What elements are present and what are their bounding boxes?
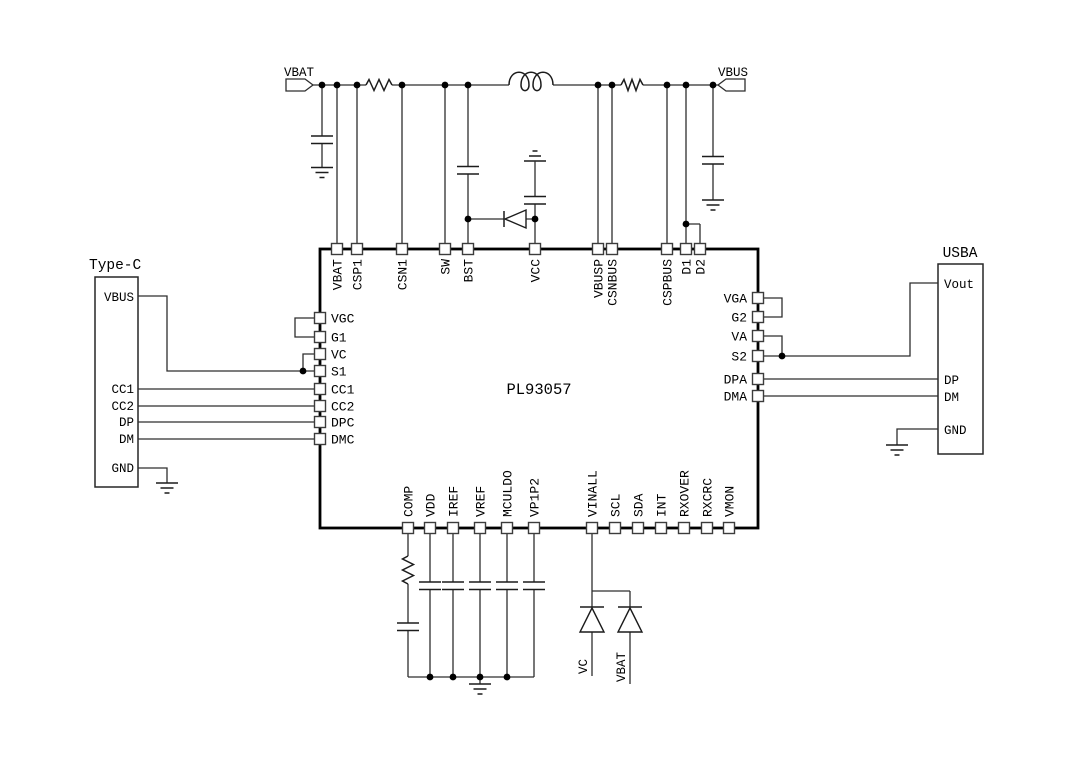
- pin-label-s2: S2: [731, 350, 747, 365]
- junction-dot: [683, 221, 690, 228]
- junction-dot: [465, 216, 472, 223]
- pin-label-vp1p2: VP1P2: [528, 478, 543, 517]
- pin-label-g2: G2: [731, 311, 747, 326]
- pin-top-vcc: [530, 244, 541, 255]
- typec-pin-vbus: VBUS: [104, 291, 134, 305]
- junction-dot: [427, 674, 434, 681]
- schematic-canvas: VBAT VBUS: [0, 0, 1080, 760]
- schematic-page: VBAT VBUS: [0, 0, 1080, 760]
- junction-dot: [300, 368, 307, 375]
- junction-dot: [595, 82, 602, 89]
- pin-label-csp1: CSP1: [351, 259, 366, 290]
- pin-label-cspbus: CSPBUS: [661, 259, 676, 306]
- pin-top-sw: [440, 244, 451, 255]
- pin-label-cc2: CC2: [331, 400, 354, 415]
- typec-pin-dp: DP: [119, 416, 134, 430]
- pin-top-csn1: [397, 244, 408, 255]
- net-label-vbat: VBAT: [615, 651, 629, 682]
- pin-label-dma: DMA: [724, 390, 748, 405]
- pin-label-vbusp: VBUSP: [592, 259, 607, 298]
- pin-label-rxcrc: RXCRC: [701, 478, 716, 517]
- pin-label-vmon: VMON: [723, 486, 738, 517]
- pin-bottom-scl: [610, 523, 621, 534]
- pin-label-vc: VC: [331, 348, 347, 363]
- junction-dot: [465, 82, 472, 89]
- junction-dot: [354, 82, 361, 89]
- pin-label-vcc: VCC: [529, 259, 544, 283]
- terminal-vbat-label: VBAT: [284, 66, 315, 80]
- pin-right-dpa: [753, 374, 764, 385]
- pin-top-cspbus: [662, 244, 673, 255]
- junction-dot: [609, 82, 616, 89]
- pin-label-s1: S1: [331, 365, 347, 380]
- net-label-vc: VC: [577, 659, 591, 674]
- chip-name: PL93057: [506, 381, 571, 399]
- junction-dot: [504, 674, 511, 681]
- usba-pin-dp: DP: [944, 374, 959, 388]
- usba-pin-vout: Vout: [944, 278, 974, 292]
- pin-right-va: [753, 331, 764, 342]
- junction-dot: [683, 82, 690, 89]
- pin-left-s1: [315, 366, 326, 377]
- pin-bottom-rxcrc: [702, 523, 713, 534]
- pin-bottom-vref: [475, 523, 486, 534]
- junction-dot: [442, 82, 449, 89]
- pin-left-vc: [315, 349, 326, 360]
- typec-title: Type-C: [89, 258, 142, 274]
- pin-label-rxover: RXOVER: [678, 470, 693, 517]
- typec-pin-gnd: GND: [111, 462, 134, 476]
- pin-label-csn1: CSN1: [396, 259, 411, 290]
- typec-pin-cc1: CC1: [111, 383, 134, 397]
- pin-label-dpa: DPA: [724, 373, 748, 388]
- pin-label-vinall: VINALL: [586, 470, 601, 517]
- pin-bottom-mculdo: [502, 523, 513, 534]
- pin-label-sda: SDA: [632, 493, 647, 517]
- pin-label-vdd: VDD: [424, 493, 439, 517]
- usba-title: USBA: [943, 246, 978, 262]
- pin-label-va: VA: [731, 330, 747, 345]
- pin-right-dma: [753, 391, 764, 402]
- pin-top-vbat: [332, 244, 343, 255]
- pin-bottom-vmon: [724, 523, 735, 534]
- pin-label-dmc: DMC: [331, 433, 355, 448]
- pin-left-dmc: [315, 434, 326, 445]
- junction-dot: [319, 82, 326, 89]
- pin-top-csp1: [352, 244, 363, 255]
- pin-bottom-comp: [403, 523, 414, 534]
- pin-label-vref: VREF: [474, 486, 489, 517]
- junction-dot: [779, 353, 786, 360]
- pin-left-dpc: [315, 417, 326, 428]
- pin-left-g1: [315, 332, 326, 343]
- pin-bottom-vp1p2: [529, 523, 540, 534]
- pin-right-g2: [753, 312, 764, 323]
- typec-pin-cc2: CC2: [111, 400, 134, 414]
- pin-bottom-int: [656, 523, 667, 534]
- pin-label-vgc: VGC: [331, 312, 355, 327]
- pin-top-d2: [695, 244, 706, 255]
- pin-label-scl: SCL: [609, 494, 624, 517]
- pin-label-mculdo: MCULDO: [501, 470, 516, 517]
- pin-label-comp: COMP: [402, 486, 417, 517]
- pin-bottom-sda: [633, 523, 644, 534]
- pin-label-int: INT: [655, 493, 670, 517]
- pin-label-cc1: CC1: [331, 383, 355, 398]
- pin-top-csnbus: [607, 244, 618, 255]
- pin-label-d2: D2: [694, 259, 709, 275]
- pin-label-dpc: DPC: [331, 416, 355, 431]
- pin-bottom-vinall: [587, 523, 598, 534]
- pin-bottom-iref: [448, 523, 459, 534]
- junction-dot: [532, 216, 539, 223]
- pin-label-g1: G1: [331, 331, 347, 346]
- pin-top-vbusp: [593, 244, 604, 255]
- pin-label-d1: D1: [680, 259, 695, 275]
- junction-dot: [450, 674, 457, 681]
- typec-pin-dm: DM: [119, 433, 134, 447]
- pin-label-sw: SW: [439, 259, 454, 275]
- pin-top-d1: [681, 244, 692, 255]
- pin-right-s2: [753, 351, 764, 362]
- background: [0, 0, 1080, 760]
- pin-label-bst: BST: [462, 259, 477, 283]
- junction-dot: [399, 82, 406, 89]
- junction-dot: [664, 82, 671, 89]
- junction-dot: [710, 82, 717, 89]
- pin-bottom-vdd: [425, 523, 436, 534]
- pin-label-vga: VGA: [724, 292, 748, 307]
- terminal-vbus-label: VBUS: [718, 66, 748, 80]
- pin-label-iref: IREF: [447, 486, 462, 517]
- pin-left-vgc: [315, 313, 326, 324]
- pin-top-bst: [463, 244, 474, 255]
- usba-pin-dm: DM: [944, 391, 959, 405]
- pin-left-cc2: [315, 401, 326, 412]
- usba-pin-gnd: GND: [944, 424, 967, 438]
- pin-left-cc1: [315, 384, 326, 395]
- pin-right-vga: [753, 293, 764, 304]
- pin-label-vbat: VBAT: [331, 259, 346, 290]
- pin-bottom-rxover: [679, 523, 690, 534]
- junction-dot: [334, 82, 341, 89]
- junction-dot: [477, 674, 484, 681]
- pin-label-csnbus: CSNBUS: [606, 259, 621, 306]
